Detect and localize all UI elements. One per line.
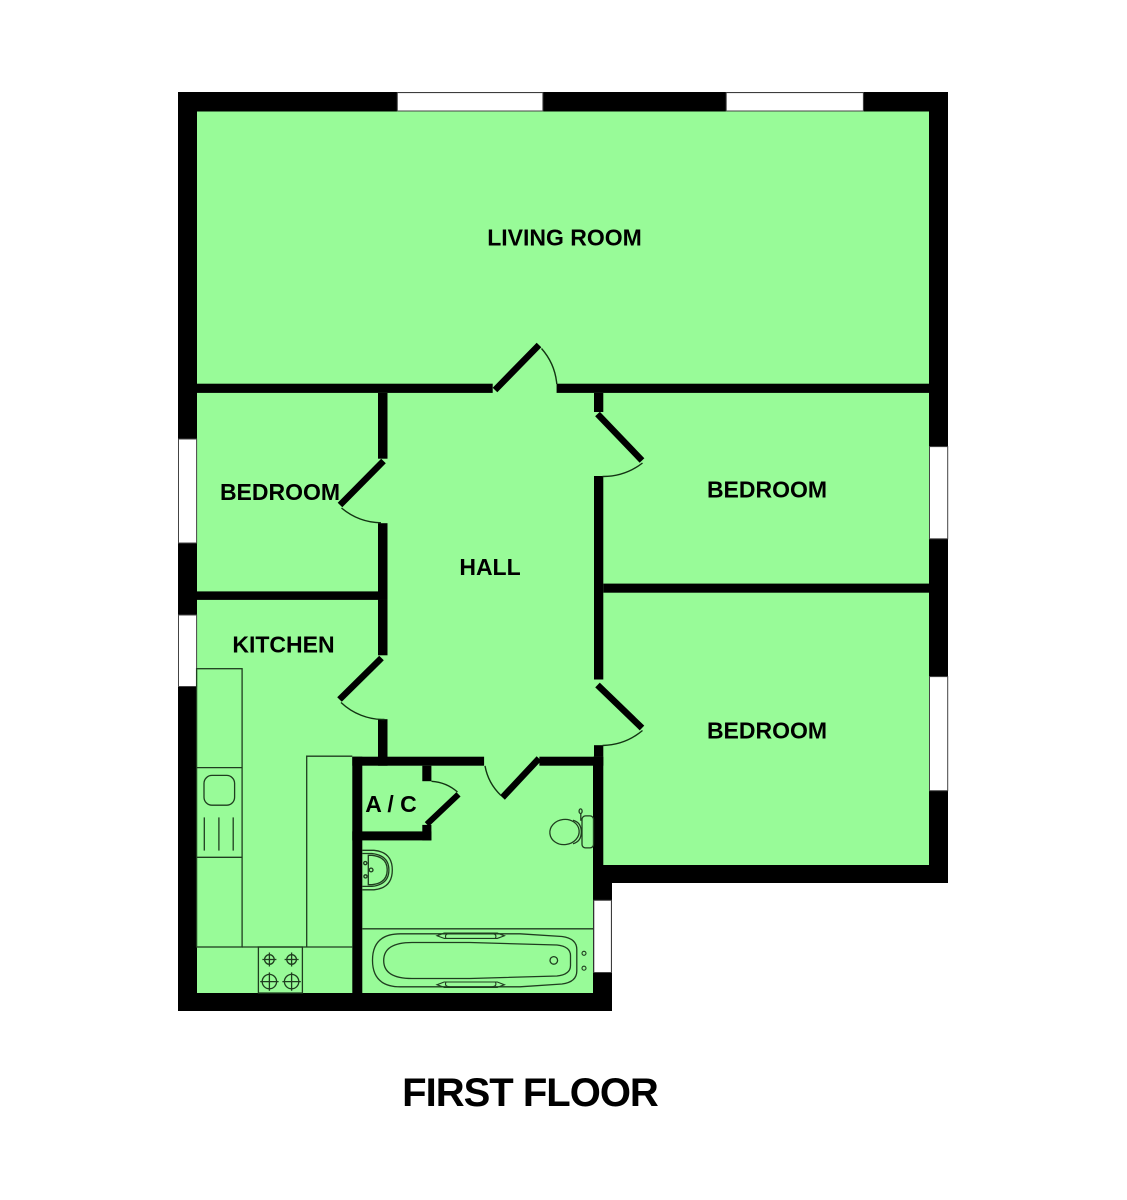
svg-text:BEDROOM: BEDROOM: [707, 718, 827, 744]
svg-text:LIVING ROOM: LIVING ROOM: [487, 225, 642, 251]
svg-text:FIRST FLOOR: FIRST FLOOR: [402, 1071, 659, 1115]
svg-text:A / C: A / C: [365, 791, 417, 817]
svg-text:KITCHEN: KITCHEN: [232, 631, 334, 657]
svg-text:BEDROOM: BEDROOM: [220, 479, 340, 505]
svg-text:HALL: HALL: [459, 554, 520, 580]
svg-text:BEDROOM: BEDROOM: [707, 477, 827, 503]
